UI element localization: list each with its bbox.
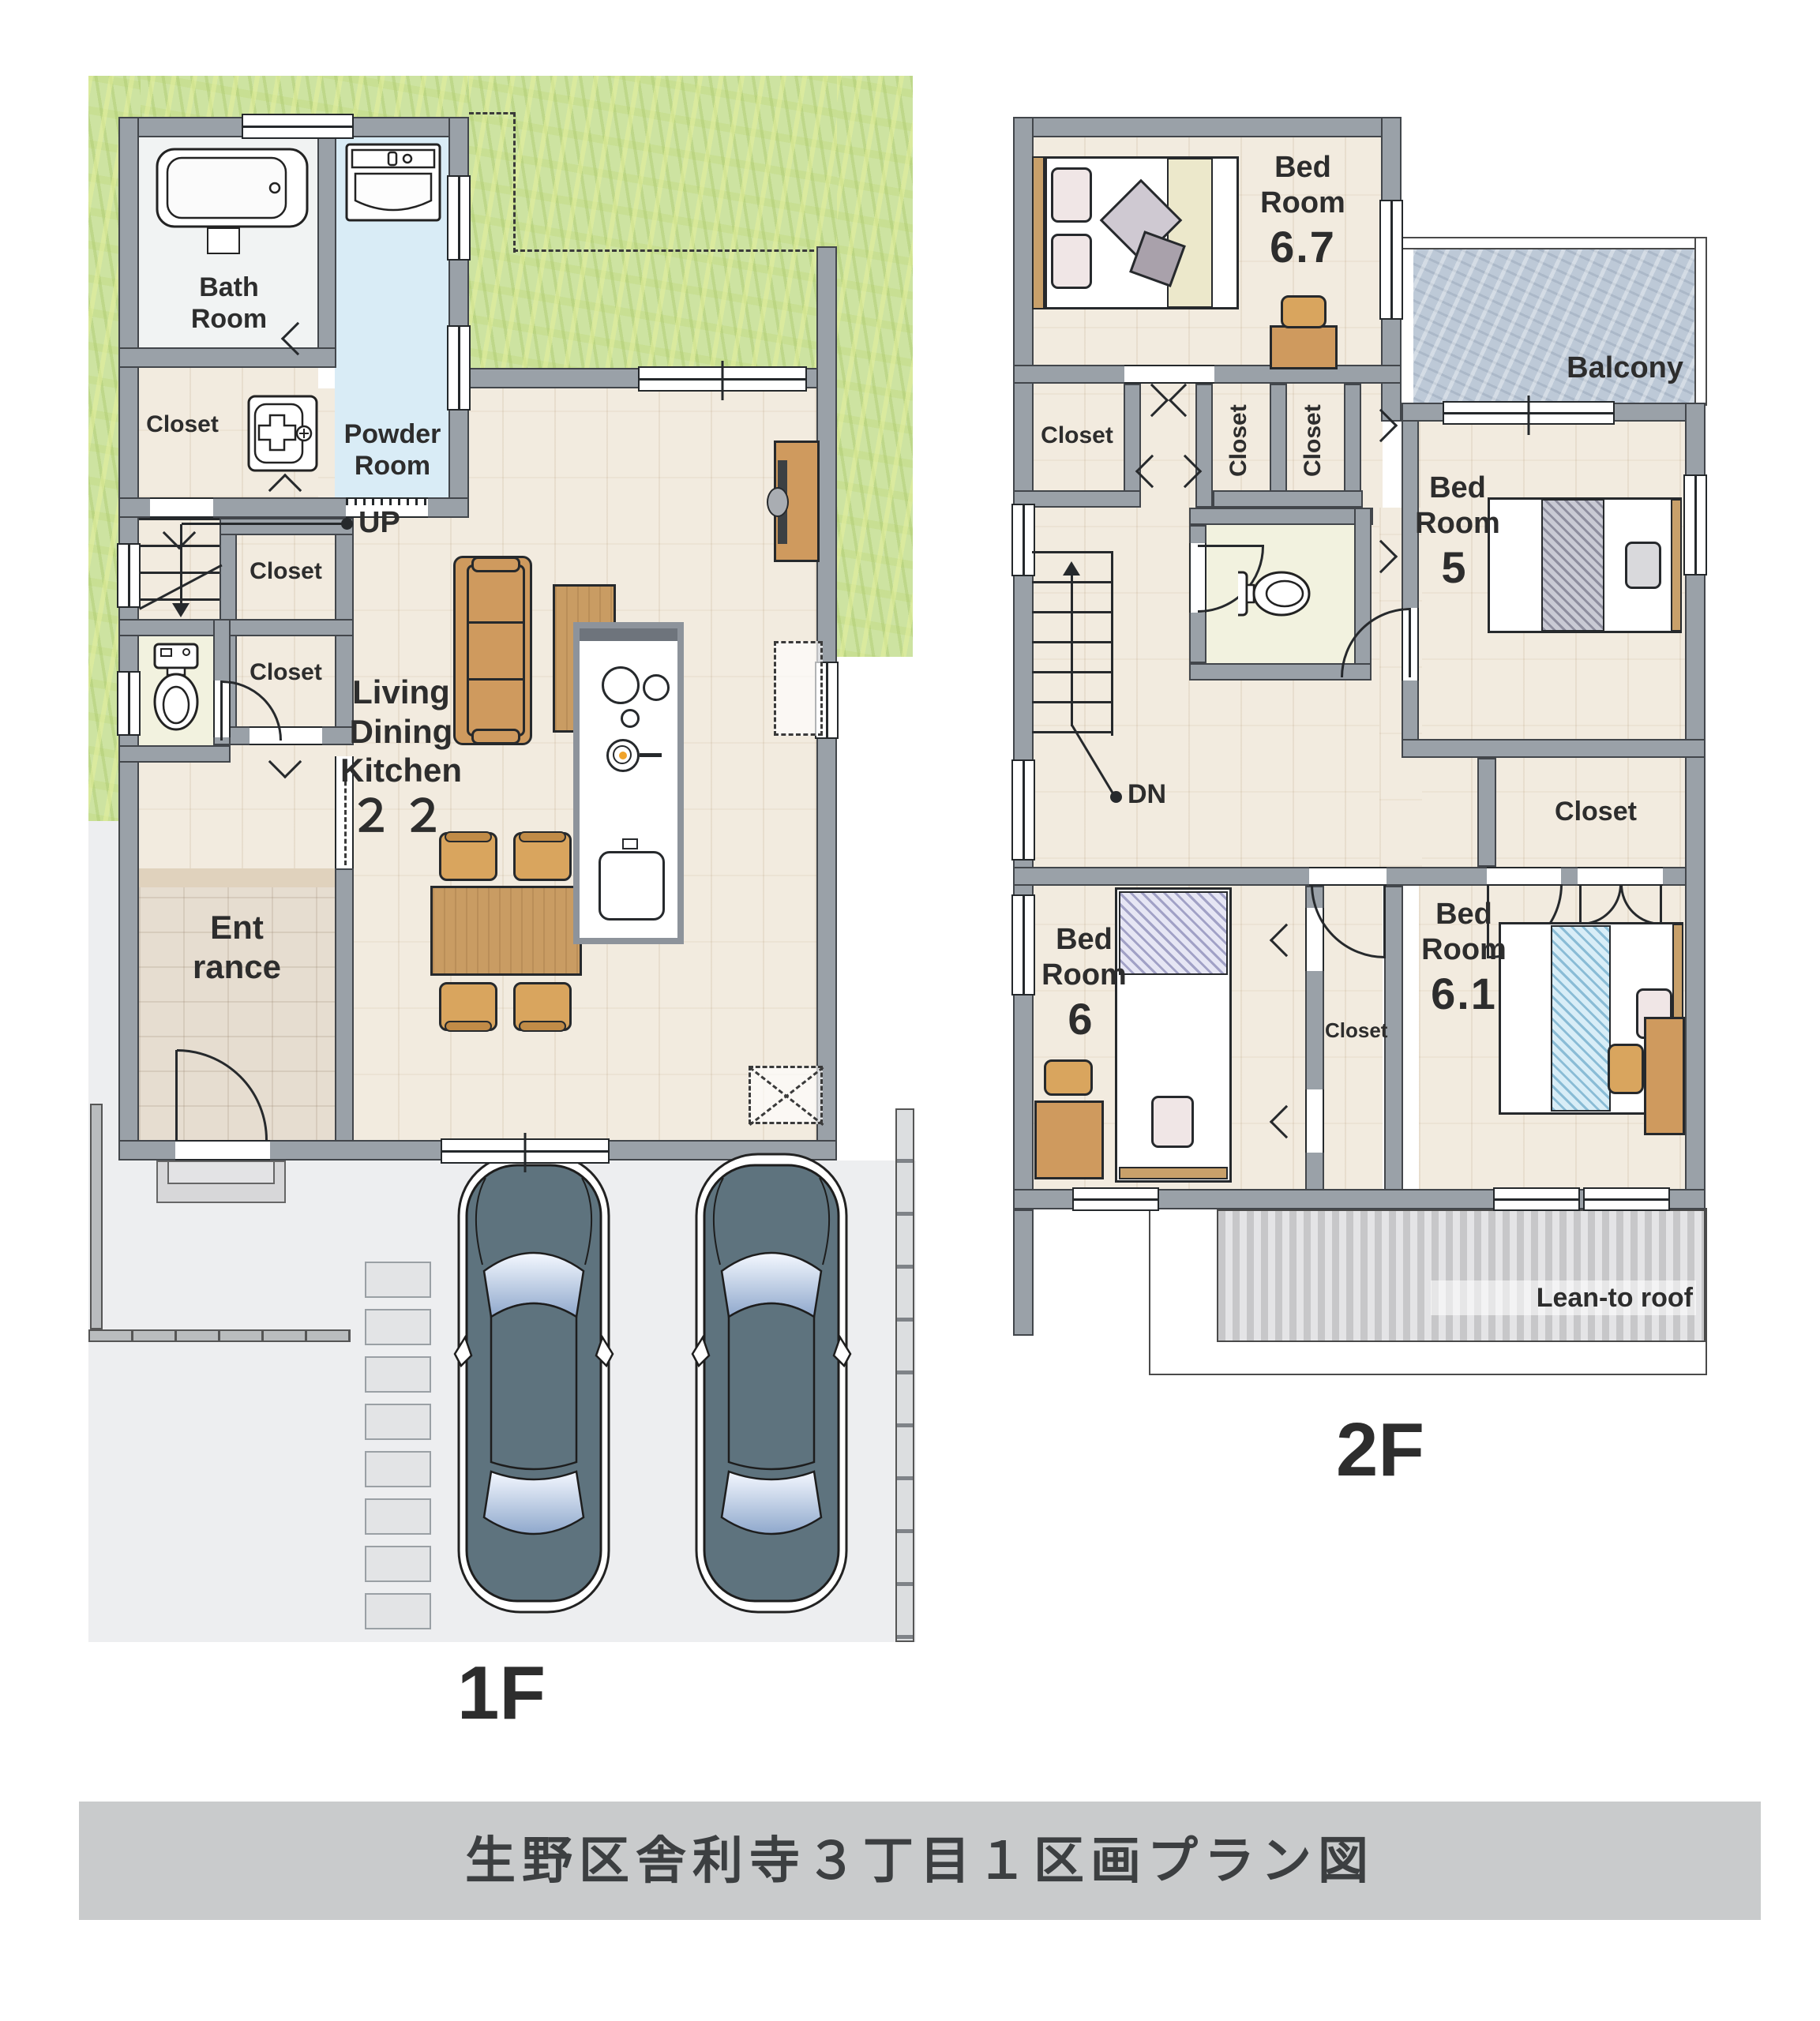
label-line: Room bbox=[1260, 186, 1345, 219]
fence-wall bbox=[88, 1329, 351, 1342]
up-connector bbox=[182, 523, 346, 525]
wall bbox=[1013, 117, 1402, 137]
pillow bbox=[1151, 1096, 1194, 1148]
wall bbox=[1402, 739, 1706, 758]
bed5-door-leaf bbox=[1409, 608, 1411, 677]
room-size: 6 bbox=[1068, 994, 1100, 1044]
floor-plan-sheet: UP bbox=[0, 0, 1820, 2021]
stepping-stone bbox=[365, 1262, 431, 1298]
toilet-door-leaf bbox=[220, 681, 223, 741]
dining-chair bbox=[439, 982, 497, 1031]
window bbox=[447, 325, 471, 411]
closet-label-vertical: Closet bbox=[1225, 392, 1260, 489]
closet-door-opening bbox=[1578, 867, 1663, 886]
toilet-1f bbox=[144, 641, 208, 734]
window bbox=[242, 114, 354, 139]
up-label: UP bbox=[358, 505, 400, 541]
window bbox=[1379, 200, 1403, 320]
leanto-label: Lean-to roof bbox=[1431, 1280, 1696, 1315]
chair-back bbox=[519, 1021, 566, 1032]
pillow bbox=[1625, 542, 1661, 589]
closet-label: Closet bbox=[1325, 1018, 1385, 1043]
bath-counter bbox=[207, 227, 240, 254]
desk-chair bbox=[1608, 1044, 1644, 1094]
bed5-label: Bed Room 5 bbox=[1412, 471, 1503, 594]
property-line bbox=[513, 112, 516, 253]
powder-label: Powder Room bbox=[325, 418, 460, 482]
bed6-door-leaf bbox=[1383, 884, 1386, 958]
stepping-stone bbox=[365, 1546, 431, 1582]
chair-back bbox=[445, 1021, 492, 1032]
closet-door-leaf bbox=[1660, 884, 1662, 925]
wall bbox=[220, 619, 354, 636]
label-line: Room bbox=[1041, 958, 1127, 992]
dn-label: DN bbox=[1128, 778, 1166, 810]
wall bbox=[1477, 758, 1496, 867]
dn-dot bbox=[1110, 791, 1122, 803]
lawn-right-strip bbox=[837, 76, 913, 657]
title-bar: 生野区舎利寺３丁目１区画プラン図 bbox=[79, 1802, 1761, 1920]
label-line: Room bbox=[355, 451, 430, 481]
window-sliding bbox=[1443, 401, 1615, 425]
pillow bbox=[1051, 167, 1092, 223]
wall bbox=[1213, 490, 1363, 508]
wall bbox=[220, 518, 354, 535]
tv-stand bbox=[767, 487, 789, 517]
window-tick bbox=[524, 1133, 527, 1172]
balcony-rail bbox=[1694, 237, 1707, 406]
window bbox=[1583, 1187, 1670, 1211]
label-line: Bed bbox=[1274, 151, 1331, 184]
sink-faucet bbox=[622, 838, 638, 849]
desk-chair bbox=[1281, 295, 1327, 328]
balcony-label: Balcony bbox=[1532, 351, 1683, 386]
window bbox=[117, 671, 141, 736]
property-line bbox=[513, 249, 821, 252]
stepping-stone bbox=[365, 1451, 431, 1487]
room-size: 5 bbox=[1441, 542, 1473, 592]
stepping-stone bbox=[365, 1356, 431, 1393]
wall bbox=[1270, 384, 1287, 508]
stepping-stone bbox=[365, 1309, 431, 1345]
closet-label: Closet bbox=[1029, 422, 1125, 449]
bed-runner bbox=[1167, 158, 1213, 308]
kitchen-island bbox=[573, 622, 684, 944]
wall bbox=[1344, 384, 1361, 508]
block-fence bbox=[895, 1108, 914, 1642]
desk bbox=[1270, 325, 1338, 369]
stepping-stone bbox=[365, 1593, 431, 1629]
bed-footboard bbox=[1119, 1167, 1228, 1179]
pillow bbox=[1051, 234, 1092, 289]
wall bbox=[118, 745, 231, 763]
stair-arrow-head bbox=[1063, 553, 1080, 576]
closet-label: Closet bbox=[1529, 796, 1663, 827]
door-opening bbox=[1309, 867, 1387, 886]
closet-opening bbox=[150, 497, 213, 518]
label-line: Dining bbox=[350, 713, 453, 750]
entrance-threshold bbox=[139, 868, 335, 887]
double-bed-headboard bbox=[1032, 156, 1045, 309]
vanity-sink bbox=[344, 142, 442, 223]
stair-edge bbox=[1111, 551, 1113, 736]
bed67-label: Bed Room 6.7 bbox=[1228, 150, 1378, 273]
blanket bbox=[1541, 499, 1604, 632]
label-line: Ent bbox=[210, 909, 264, 946]
door-opening bbox=[1124, 365, 1214, 384]
utility-box bbox=[749, 1066, 823, 1124]
window bbox=[117, 543, 141, 608]
dining-table bbox=[430, 886, 582, 976]
wall bbox=[317, 136, 336, 368]
closet-opening bbox=[1305, 1089, 1324, 1153]
stove-burner bbox=[602, 666, 640, 704]
label-line: Powder bbox=[344, 419, 441, 449]
label-line: Bath bbox=[199, 272, 259, 302]
closet-label: Closet bbox=[237, 557, 335, 585]
closet-label: Closet bbox=[137, 411, 227, 438]
label-line: Bed bbox=[1429, 471, 1486, 504]
blanket bbox=[1119, 891, 1228, 975]
window bbox=[447, 175, 471, 261]
bathtub bbox=[155, 147, 310, 229]
sofa-seam bbox=[468, 621, 523, 624]
door-opening-entrance bbox=[175, 1140, 270, 1160]
floor1-label: 1F bbox=[438, 1650, 565, 1737]
label-line: Room bbox=[1415, 507, 1500, 540]
kitchen-counter-edge bbox=[580, 628, 677, 641]
bath-label: Bath Room bbox=[166, 272, 292, 335]
desk bbox=[1644, 1017, 1685, 1135]
plan-title: 生野区舎利寺３丁目１区画プラン図 bbox=[79, 1802, 1761, 1920]
wall bbox=[118, 347, 336, 368]
window bbox=[1011, 894, 1035, 996]
blanket bbox=[1551, 925, 1611, 1112]
wall bbox=[1013, 117, 1034, 1209]
bed-headboard bbox=[1671, 499, 1682, 632]
ldk-label: Living Dining Kitchen ２２ bbox=[283, 673, 520, 842]
label-line: rance bbox=[193, 948, 281, 985]
leanto-roof bbox=[1217, 1209, 1706, 1342]
wall bbox=[118, 117, 139, 1160]
stove-burner bbox=[621, 709, 640, 728]
closet-door-leaf bbox=[1579, 884, 1582, 925]
window-tick bbox=[1528, 396, 1530, 435]
closet-label-vertical: Closet bbox=[1300, 392, 1334, 489]
up-dot bbox=[341, 518, 353, 530]
floor2-label: 2F bbox=[1317, 1407, 1443, 1494]
balcony-rail bbox=[1402, 237, 1707, 249]
entrance-label: Ent rance bbox=[166, 908, 308, 986]
window-sliding bbox=[638, 366, 807, 392]
toilet-2f bbox=[1238, 543, 1331, 644]
label-line: Kitchen bbox=[340, 752, 462, 789]
desk-chair bbox=[1044, 1059, 1093, 1096]
sofa-armrest bbox=[471, 557, 520, 572]
bed6-label: Bed Room 6 bbox=[1034, 922, 1134, 1045]
window-tick bbox=[722, 361, 724, 400]
chair-back bbox=[519, 831, 566, 842]
tv-board bbox=[774, 441, 820, 562]
dining-chair bbox=[513, 832, 572, 881]
stepping-stone bbox=[365, 1404, 431, 1440]
car bbox=[452, 1146, 615, 1620]
entrance-porch-step bbox=[167, 1160, 275, 1184]
window bbox=[1011, 759, 1035, 861]
refrigerator-space bbox=[774, 641, 823, 736]
label-line: Living bbox=[352, 673, 450, 711]
desk bbox=[1034, 1100, 1104, 1179]
window bbox=[1072, 1187, 1159, 1211]
wall bbox=[1013, 1209, 1034, 1336]
wall bbox=[335, 868, 354, 1142]
fence-wall bbox=[90, 1104, 103, 1329]
car bbox=[690, 1146, 853, 1620]
door-opening bbox=[1487, 867, 1561, 886]
room-size: 6.1 bbox=[1431, 969, 1497, 1018]
bed61-label: Bed Room 6.1 bbox=[1412, 897, 1516, 1020]
property-line bbox=[469, 112, 515, 114]
wall bbox=[1189, 508, 1373, 525]
stair-arrow-head bbox=[172, 603, 190, 626]
stove-burner bbox=[643, 674, 670, 701]
kitchen-sink bbox=[599, 851, 665, 921]
stepping-stone bbox=[365, 1498, 431, 1535]
window-sliding bbox=[441, 1138, 610, 1164]
dining-chair bbox=[513, 982, 572, 1031]
window bbox=[1683, 474, 1707, 576]
pan-handle bbox=[640, 753, 662, 757]
egg-yolk bbox=[619, 752, 627, 759]
entrance-door-leaf bbox=[175, 1050, 178, 1140]
ldk-size: ２２ bbox=[349, 791, 453, 841]
label-line: Bed bbox=[1056, 923, 1113, 956]
label-line: Room bbox=[1421, 933, 1507, 966]
label-line: Room bbox=[191, 304, 267, 334]
room-size: 6.7 bbox=[1270, 222, 1336, 272]
window bbox=[1493, 1187, 1580, 1211]
stair-arrow-line bbox=[1071, 565, 1073, 726]
label-line: Bed bbox=[1435, 898, 1492, 931]
washing-machine bbox=[246, 392, 319, 474]
